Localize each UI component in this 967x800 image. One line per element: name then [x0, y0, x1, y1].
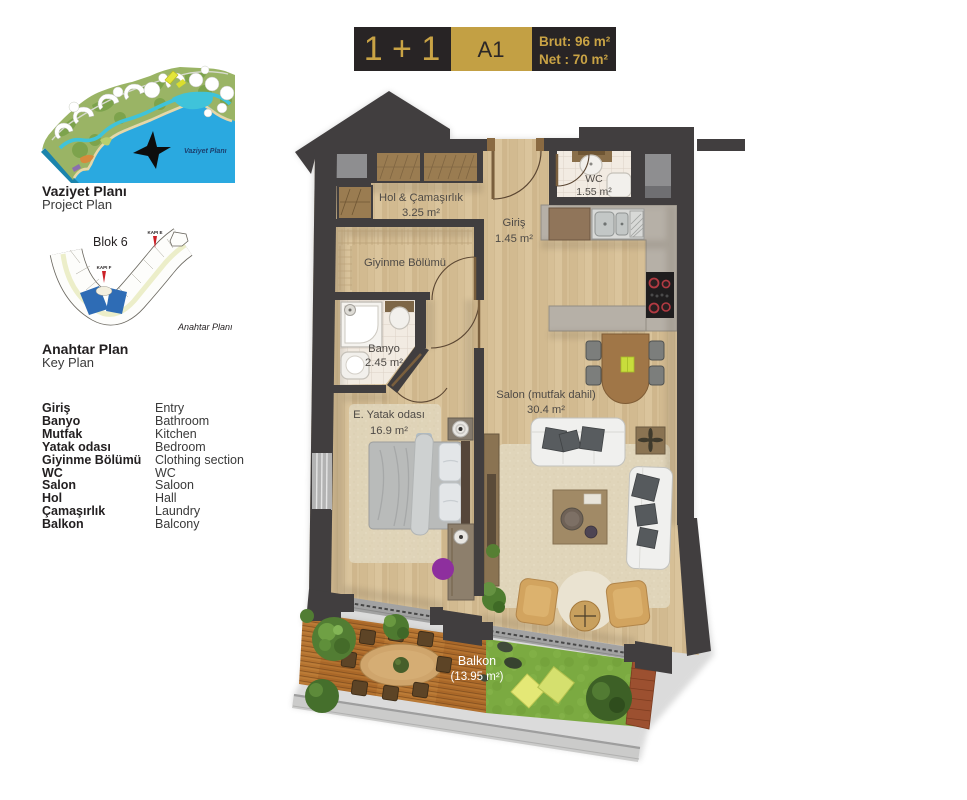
svg-text:3.25 m²: 3.25 m² [402, 207, 440, 219]
svg-text:Giyinme Bölümü: Giyinme Bölümü [364, 257, 446, 269]
svg-text:Laundry: Laundry [155, 504, 201, 518]
svg-text:2.45 m²: 2.45 m² [365, 357, 403, 369]
svg-text:Mutfak: Mutfak [42, 427, 82, 441]
svg-text:Yatak odası: Yatak odası [42, 440, 111, 454]
svg-text:Vaziyet Planı: Vaziyet Planı [184, 148, 227, 155]
svg-text:Saloon: Saloon [155, 478, 194, 492]
svg-text:Kitchen: Kitchen [155, 427, 197, 441]
svg-text:KAPI F: KAPI F [97, 265, 112, 270]
svg-text:1.45 m²: 1.45 m² [495, 233, 533, 245]
svg-text:Salon (mutfak dahil): Salon (mutfak dahil) [496, 389, 596, 401]
svg-text:Banyo: Banyo [42, 414, 81, 428]
svg-text:Brut: 96 m²: Brut: 96 m² [539, 34, 611, 49]
svg-text:Blok 6: Blok 6 [93, 235, 128, 249]
svg-text:Balcony: Balcony [155, 517, 200, 531]
svg-text:Anahtar Planı: Anahtar Planı [177, 322, 233, 332]
svg-text:Key Plan: Key Plan [42, 355, 94, 370]
svg-text:Balkon: Balkon [458, 654, 496, 668]
svg-text:1.55 m²: 1.55 m² [576, 186, 612, 198]
svg-text:KAPI E: KAPI E [147, 230, 162, 235]
svg-text:Project Plan: Project Plan [42, 197, 112, 212]
svg-text:Giriş: Giriş [503, 217, 526, 229]
svg-text:1 + 1: 1 + 1 [364, 30, 441, 68]
svg-text:Entry: Entry [155, 401, 185, 415]
svg-text:Salon: Salon [42, 478, 76, 492]
svg-text:(13.95 m²): (13.95 m²) [450, 671, 503, 683]
svg-text:Giriş: Giriş [42, 401, 71, 415]
svg-text:Net : 70 m²: Net : 70 m² [539, 52, 609, 67]
svg-text:E. Yatak odası: E. Yatak odası [353, 409, 425, 421]
svg-text:Bedroom: Bedroom [155, 440, 206, 454]
svg-text:Clothing section: Clothing section [155, 453, 244, 467]
svg-text:Hall: Hall [155, 491, 177, 505]
svg-text:Balkon: Balkon [42, 517, 84, 531]
svg-text:Hol: Hol [42, 491, 62, 505]
svg-text:Çamaşırlık: Çamaşırlık [42, 504, 105, 518]
svg-text:WC: WC [585, 173, 603, 185]
svg-text:30.4 m²: 30.4 m² [527, 404, 565, 416]
svg-text:16.9 m²: 16.9 m² [370, 425, 408, 437]
svg-text:Banyo: Banyo [368, 343, 400, 355]
svg-text:A1: A1 [478, 37, 505, 62]
svg-text:Bathroom: Bathroom [155, 414, 209, 428]
svg-text:Giyinme Bölümü: Giyinme Bölümü [42, 453, 141, 467]
svg-text:Hol & Çamaşırlık: Hol & Çamaşırlık [379, 192, 463, 204]
